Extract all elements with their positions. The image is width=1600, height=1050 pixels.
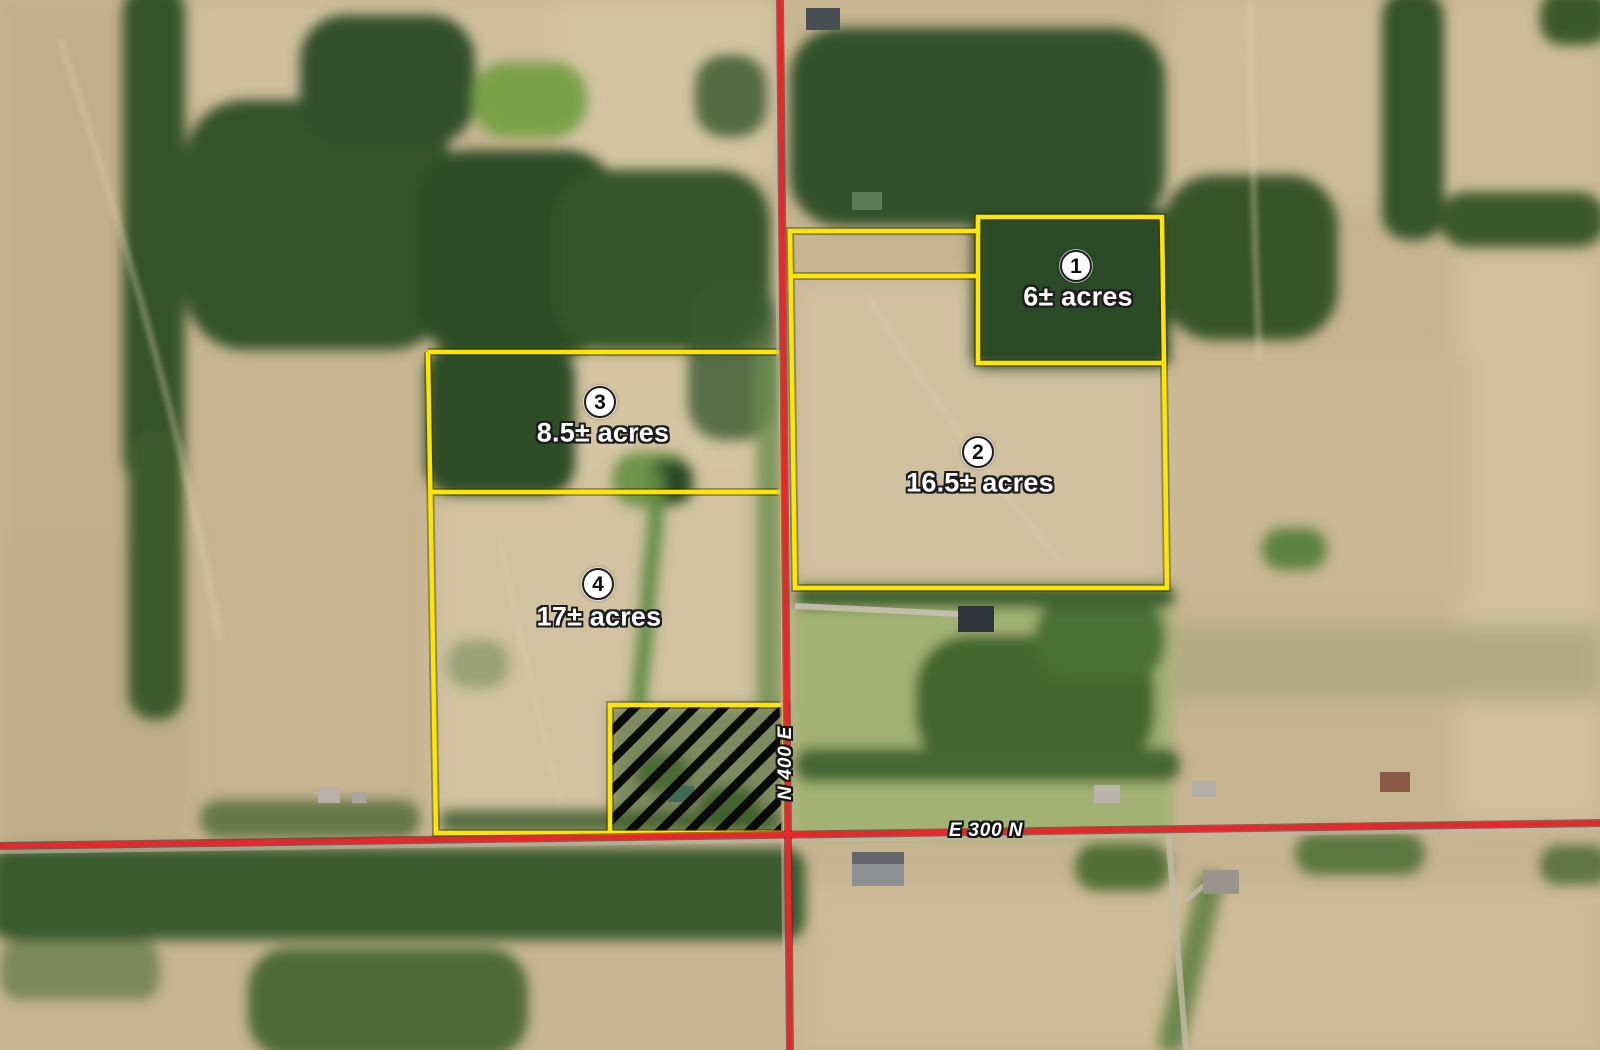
road-label-n400e: N 400 E	[775, 726, 797, 800]
parcel-4-marker: 4	[582, 568, 614, 600]
road-label-e300n: E 300 N	[949, 820, 1023, 842]
parcel-1-acreage: 6± acres	[1023, 282, 1133, 313]
parcel-2-marker: 2	[962, 436, 994, 468]
parcel-1-number: 1	[1070, 256, 1082, 277]
parcel-4-number: 4	[592, 574, 604, 595]
parcel-2-acreage: 16.5± acres	[906, 468, 1054, 499]
parcel-2-number: 2	[972, 442, 984, 463]
aerial-parcel-map: 1 6± acres 2 16.5± acres 3 8.5± acres 4 …	[0, 0, 1600, 1050]
parcel-3-acreage: 8.5± acres	[537, 418, 669, 449]
parcel-3-marker: 3	[584, 386, 616, 418]
parcel-4-acreage: 17± acres	[537, 602, 662, 633]
parcel-1-marker: 1	[1060, 250, 1092, 282]
label-overlay: 1 6± acres 2 16.5± acres 3 8.5± acres 4 …	[0, 0, 1600, 1050]
parcel-3-number: 3	[594, 392, 606, 413]
